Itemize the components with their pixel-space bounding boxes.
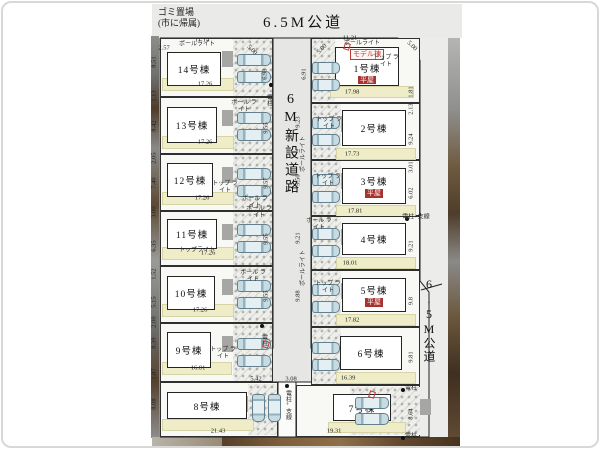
car-icon bbox=[312, 342, 340, 354]
dimension-label: 2.00 bbox=[151, 316, 158, 327]
light-fixture-label: ポールライト bbox=[179, 42, 215, 49]
utility-pole-dot bbox=[269, 83, 273, 87]
dimension-label: 9.88 bbox=[295, 290, 302, 301]
light-fixture-label: ポールライト bbox=[301, 250, 308, 286]
hiraya-badge: 平屋 bbox=[365, 189, 383, 197]
dimension-label: 6.91 bbox=[301, 68, 308, 79]
car-icon bbox=[312, 79, 340, 91]
dimension-label: 8.08 bbox=[151, 398, 158, 409]
lot-house: 2号棟 bbox=[342, 110, 406, 146]
car-icon bbox=[312, 62, 340, 74]
hiraya-badge: 平屋 bbox=[358, 76, 376, 84]
garbage-area-label: ゴミ置場 (市に帰属) bbox=[158, 7, 200, 30]
car-icon bbox=[252, 394, 265, 422]
light-fixture-label: トップライト bbox=[179, 248, 215, 255]
light-fixture-label: ポール ライト bbox=[231, 100, 257, 114]
light-fixture-label: ポール ライト bbox=[246, 206, 272, 220]
lot-house: 14号棟 bbox=[167, 52, 221, 86]
frontage-dimension: 17.26 bbox=[198, 81, 213, 88]
center-road-label: 6M新設道路 bbox=[280, 92, 300, 196]
dimension-label: 9.55 bbox=[263, 233, 270, 244]
garden-strip bbox=[330, 86, 414, 98]
dimension-label: 8.39 bbox=[151, 337, 158, 348]
dimension-label: 8.64 bbox=[408, 408, 415, 419]
lot-house-label: 8号棟 bbox=[194, 399, 221, 413]
dimension-label: 1.52 bbox=[151, 268, 158, 279]
lot-house-label: 13号棟 bbox=[176, 118, 209, 132]
dimension-label: 6.35 bbox=[151, 240, 158, 251]
lot-house-label: 5号棟 bbox=[361, 283, 388, 297]
lot-house: 4号棟 bbox=[342, 223, 406, 255]
right-road-label: 6.5M公道 bbox=[421, 277, 438, 363]
utility-pole-label: 電柱+支線 bbox=[402, 215, 429, 222]
lot-house: 9号棟 bbox=[167, 332, 211, 368]
lot-house-label: 3号棟 bbox=[361, 174, 388, 188]
lot-house: 5号棟平屋 bbox=[342, 278, 406, 312]
dimension-label: 8.42 bbox=[151, 120, 158, 131]
frontage-dimension: 17.81 bbox=[348, 208, 363, 215]
dimension-label: 3.00 bbox=[151, 206, 158, 217]
hiraya-badge: 平屋 bbox=[365, 298, 383, 306]
frontage-dimension: 17.26 bbox=[198, 139, 213, 146]
dimension-label: 9.24 bbox=[408, 133, 415, 144]
lot-house: 6号棟 bbox=[340, 336, 402, 370]
car-icon bbox=[312, 134, 340, 146]
lot-house-label: 12号棟 bbox=[174, 173, 207, 187]
dimension-label: 9.55 bbox=[263, 290, 270, 301]
dimension-label: 9.21 bbox=[408, 240, 415, 251]
frontage-dimension: 16.01 bbox=[191, 365, 206, 372]
dimension-label: 19.31 bbox=[327, 428, 342, 435]
plan-annotations: 14号棟17.2613号棟17.2612号棟17.2611号棟17.2610号棟… bbox=[0, 0, 600, 449]
dimension-label: 2.05 bbox=[151, 152, 158, 163]
light-fixture-label: トップ ライト bbox=[212, 181, 238, 195]
light-fixture-label: ポールライト bbox=[301, 136, 308, 172]
dimension-label: 5.15 bbox=[151, 296, 158, 307]
car-icon bbox=[268, 394, 281, 422]
light-fixture-label: トップ ライト bbox=[210, 347, 236, 361]
car-icon bbox=[237, 355, 271, 367]
garbage-area-line2: (市に帰属) bbox=[158, 18, 200, 28]
dimension-label: 6.93 bbox=[262, 68, 269, 79]
site-plan-image: 14号棟17.2613号棟17.2612号棟17.2611号棟17.2610号棟… bbox=[0, 0, 600, 449]
lot-house-label: 4号棟 bbox=[361, 232, 388, 246]
dimension-label: 6.02 bbox=[408, 187, 415, 198]
dimension-label: 1.87 bbox=[151, 368, 158, 379]
light-fixture-label: ポール ライト bbox=[240, 270, 266, 284]
dimension-label: 9.21 bbox=[295, 232, 302, 243]
car-icon bbox=[355, 397, 389, 409]
lot-house: 10号棟 bbox=[167, 276, 215, 310]
dimension-label: 9.57 bbox=[263, 177, 270, 188]
lot-house-label: 14号棟 bbox=[178, 62, 211, 76]
light-fixture-label: トップ ライト bbox=[315, 281, 341, 295]
frontage-dimension: 16.39 bbox=[341, 375, 356, 382]
dimension-label: 3.08 bbox=[285, 376, 296, 383]
parking-area bbox=[233, 324, 272, 381]
dimension-label: 2.13 bbox=[408, 103, 415, 114]
lot-house: 3号棟平屋 bbox=[342, 168, 406, 204]
utility-pole-label: 電柱+支線 bbox=[284, 390, 291, 420]
garbage-area-line1: ゴミ置場 bbox=[158, 7, 194, 17]
frontage-dimension: 17.26 bbox=[193, 307, 208, 314]
lot-house-label: 2号棟 bbox=[361, 121, 388, 135]
dimension-label: 9.8 bbox=[408, 297, 415, 305]
utility-pole-dot bbox=[285, 384, 289, 388]
dimension-label: 5.42 bbox=[250, 376, 261, 383]
dimension-label: 9.55 bbox=[263, 122, 270, 133]
car-icon bbox=[312, 301, 340, 313]
car-icon bbox=[312, 245, 340, 257]
light-fixture-label: トップ ライト bbox=[373, 55, 399, 69]
car-icon bbox=[312, 359, 340, 371]
car-icon bbox=[355, 413, 389, 425]
frontage-dimension: 18.01 bbox=[343, 260, 358, 267]
top-road-label: 6.5M公道 bbox=[263, 11, 343, 32]
dimension-label: 8.51 bbox=[151, 56, 158, 67]
frontage-dimension: 17.98 bbox=[345, 89, 360, 96]
utility-pole-label: 電柱 bbox=[405, 386, 417, 393]
lot-house-label: 11号棟 bbox=[176, 227, 208, 241]
lot-house-label: 10号棟 bbox=[175, 286, 208, 300]
garden-strip bbox=[162, 419, 254, 431]
lot-house-label: 9号棟 bbox=[176, 343, 203, 357]
dimension-label: 1.81 bbox=[408, 86, 415, 97]
dimension-label: 2.57 bbox=[158, 45, 169, 52]
frontage-dimension: 17.82 bbox=[345, 317, 360, 324]
lot-house-label: 6号棟 bbox=[358, 346, 385, 360]
dimension-label: 3.01 bbox=[408, 161, 415, 172]
utility-pole-label: 電柱 bbox=[265, 94, 272, 106]
dimension-label: 9.81 bbox=[408, 351, 415, 362]
lot-house: 11号棟 bbox=[167, 219, 217, 249]
light-fixture-label: トップ ライト bbox=[316, 117, 342, 131]
frontage-dimension: 17.26 bbox=[195, 195, 210, 202]
lot-house: 8号棟 bbox=[167, 392, 247, 419]
utility-pole-label: 電柱 bbox=[405, 434, 417, 441]
lot-house: 12号棟 bbox=[167, 163, 213, 197]
utility-pole-dot bbox=[260, 324, 264, 328]
dimension-label: 21.43 bbox=[211, 428, 226, 435]
frontage-dimension: 17.73 bbox=[345, 151, 360, 158]
light-fixture-label: トップ ライト bbox=[315, 174, 341, 188]
car-icon bbox=[312, 191, 340, 203]
light-fixture-label: ポール ライト bbox=[306, 218, 332, 232]
dimension-label: 1.13 bbox=[151, 90, 158, 101]
dimension-label: 7.40 bbox=[151, 177, 158, 188]
